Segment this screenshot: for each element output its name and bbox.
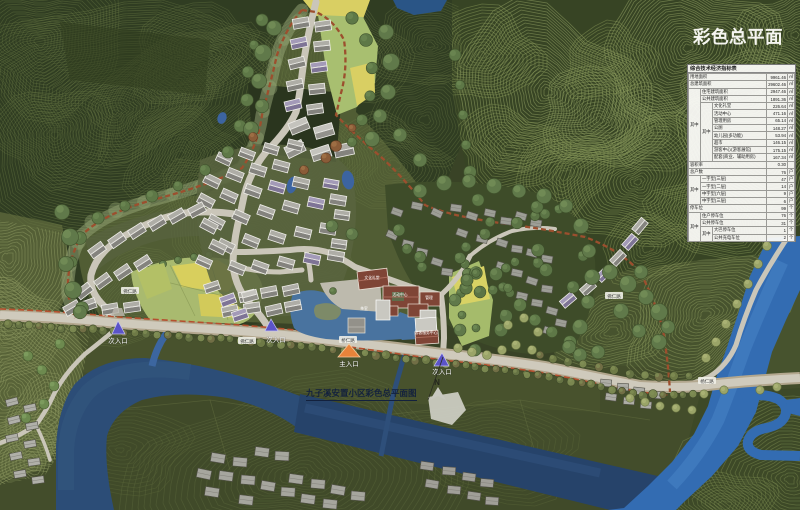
svg-text:茶室: 茶室 bbox=[360, 306, 368, 311]
svg-text:次入口: 次入口 bbox=[108, 336, 128, 345]
svg-text:文化礼堂: 文化礼堂 bbox=[364, 275, 379, 280]
svg-text:主入口: 主入口 bbox=[339, 359, 359, 368]
svg-text:佛仁路: 佛仁路 bbox=[240, 338, 254, 345]
svg-text:活动中心: 活动中心 bbox=[392, 292, 407, 297]
svg-text:佛仁路: 佛仁路 bbox=[123, 288, 137, 295]
svg-text:佛仁路: 佛仁路 bbox=[607, 293, 621, 300]
svg-text:管理: 管理 bbox=[425, 295, 433, 300]
svg-text:次入口: 次入口 bbox=[266, 335, 286, 344]
svg-text:游客服务中心: 游客服务中心 bbox=[415, 330, 438, 335]
svg-text:桥仁路: 桥仁路 bbox=[341, 337, 355, 344]
svg-text:杨仁路: 杨仁路 bbox=[700, 378, 714, 385]
svg-text:次入口: 次入口 bbox=[432, 367, 452, 376]
